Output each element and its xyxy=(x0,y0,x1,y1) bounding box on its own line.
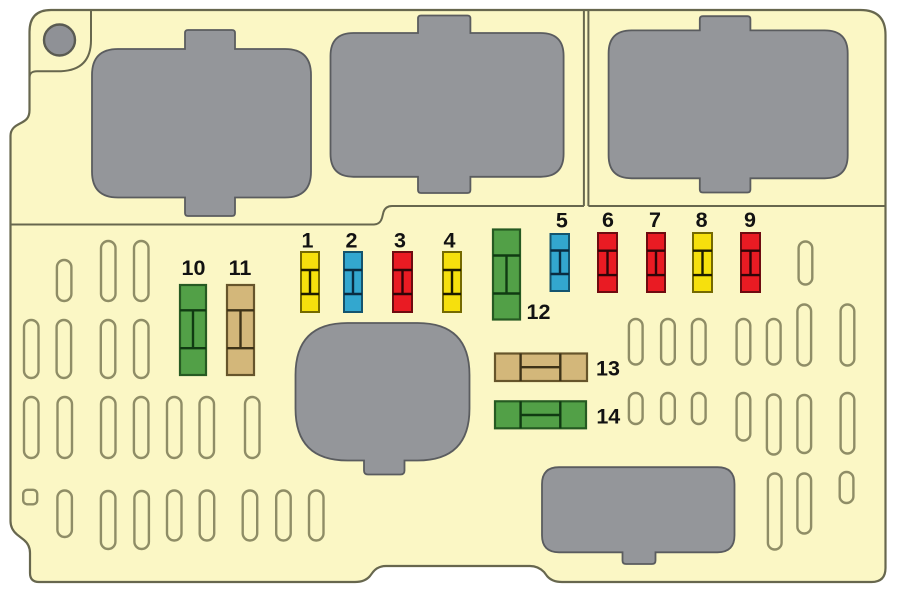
svg-text:4: 4 xyxy=(444,229,456,253)
svg-text:10: 10 xyxy=(182,256,206,280)
svg-text:3: 3 xyxy=(394,229,406,253)
svg-text:2: 2 xyxy=(346,229,358,253)
svg-text:12: 12 xyxy=(527,300,551,324)
svg-text:13: 13 xyxy=(596,357,620,381)
svg-text:8: 8 xyxy=(696,208,708,232)
svg-text:7: 7 xyxy=(649,208,661,232)
svg-text:11: 11 xyxy=(229,256,252,280)
svg-text:9: 9 xyxy=(744,208,756,232)
svg-text:1: 1 xyxy=(302,229,314,253)
svg-text:5: 5 xyxy=(556,209,568,233)
svg-text:14: 14 xyxy=(596,405,620,429)
svg-text:6: 6 xyxy=(602,208,614,232)
